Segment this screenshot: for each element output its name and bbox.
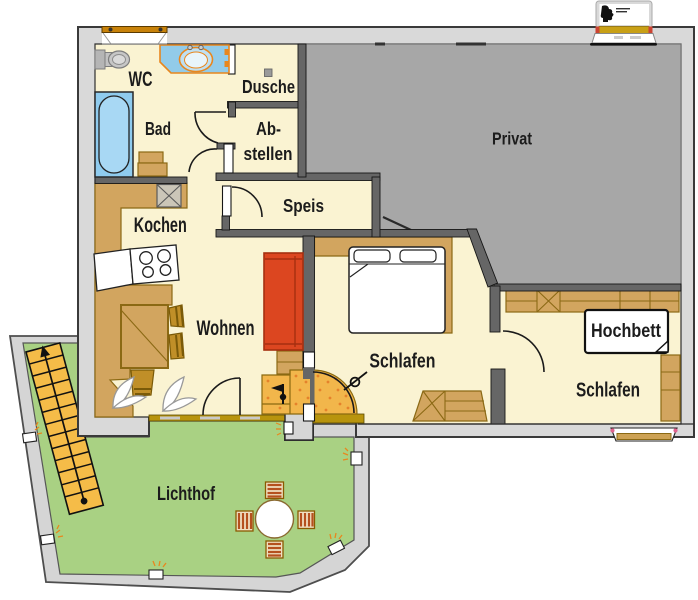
svg-text:Wohnen: Wohnen: [197, 317, 255, 340]
svg-text:Schlafen: Schlafen: [576, 380, 640, 402]
svg-text:Speis: Speis: [283, 196, 324, 216]
svg-text:Ab-: Ab-: [256, 119, 281, 139]
svg-text:Dusche: Dusche: [242, 76, 295, 97]
svg-text:Kochen: Kochen: [134, 214, 187, 237]
svg-text:Lichthof: Lichthof: [157, 484, 216, 505]
svg-text:WC: WC: [129, 68, 153, 91]
svg-text:Schlafen: Schlafen: [369, 351, 435, 373]
svg-text:Bad: Bad: [145, 119, 171, 139]
svg-text:Privat: Privat: [492, 128, 532, 148]
svg-text:stellen: stellen: [244, 144, 293, 164]
svg-text:Hochbett: Hochbett: [591, 321, 662, 342]
